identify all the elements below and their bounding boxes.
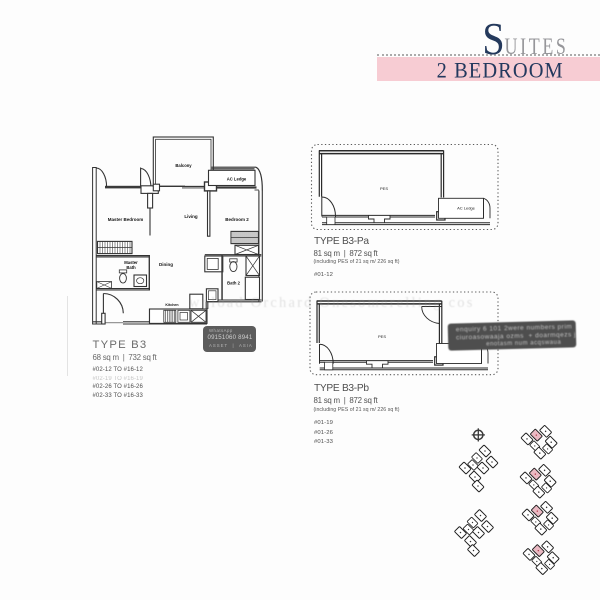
- svg-text:PES: PES: [378, 334, 386, 339]
- svg-text:Living: Living: [184, 214, 198, 219]
- svg-text:Master Bedroom: Master Bedroom: [108, 217, 144, 222]
- svg-text:Balcony: Balcony: [175, 163, 192, 168]
- svg-text:wnload Orchard Onesomerelling: wnload Orchard Onesomerelling cos: [189, 295, 475, 311]
- svg-text:Dining: Dining: [159, 262, 173, 267]
- svg-text:Bath 2: Bath 2: [227, 280, 240, 285]
- svg-text:Kitchen: Kitchen: [165, 303, 178, 307]
- svg-text:AC Ledge: AC Ledge: [457, 206, 476, 211]
- svg-text:AC Ledge: AC Ledge: [227, 177, 247, 182]
- svg-text:Bath: Bath: [126, 265, 136, 270]
- svg-text:Bedroom 2: Bedroom 2: [225, 217, 249, 222]
- svg-text:PES: PES: [380, 186, 388, 191]
